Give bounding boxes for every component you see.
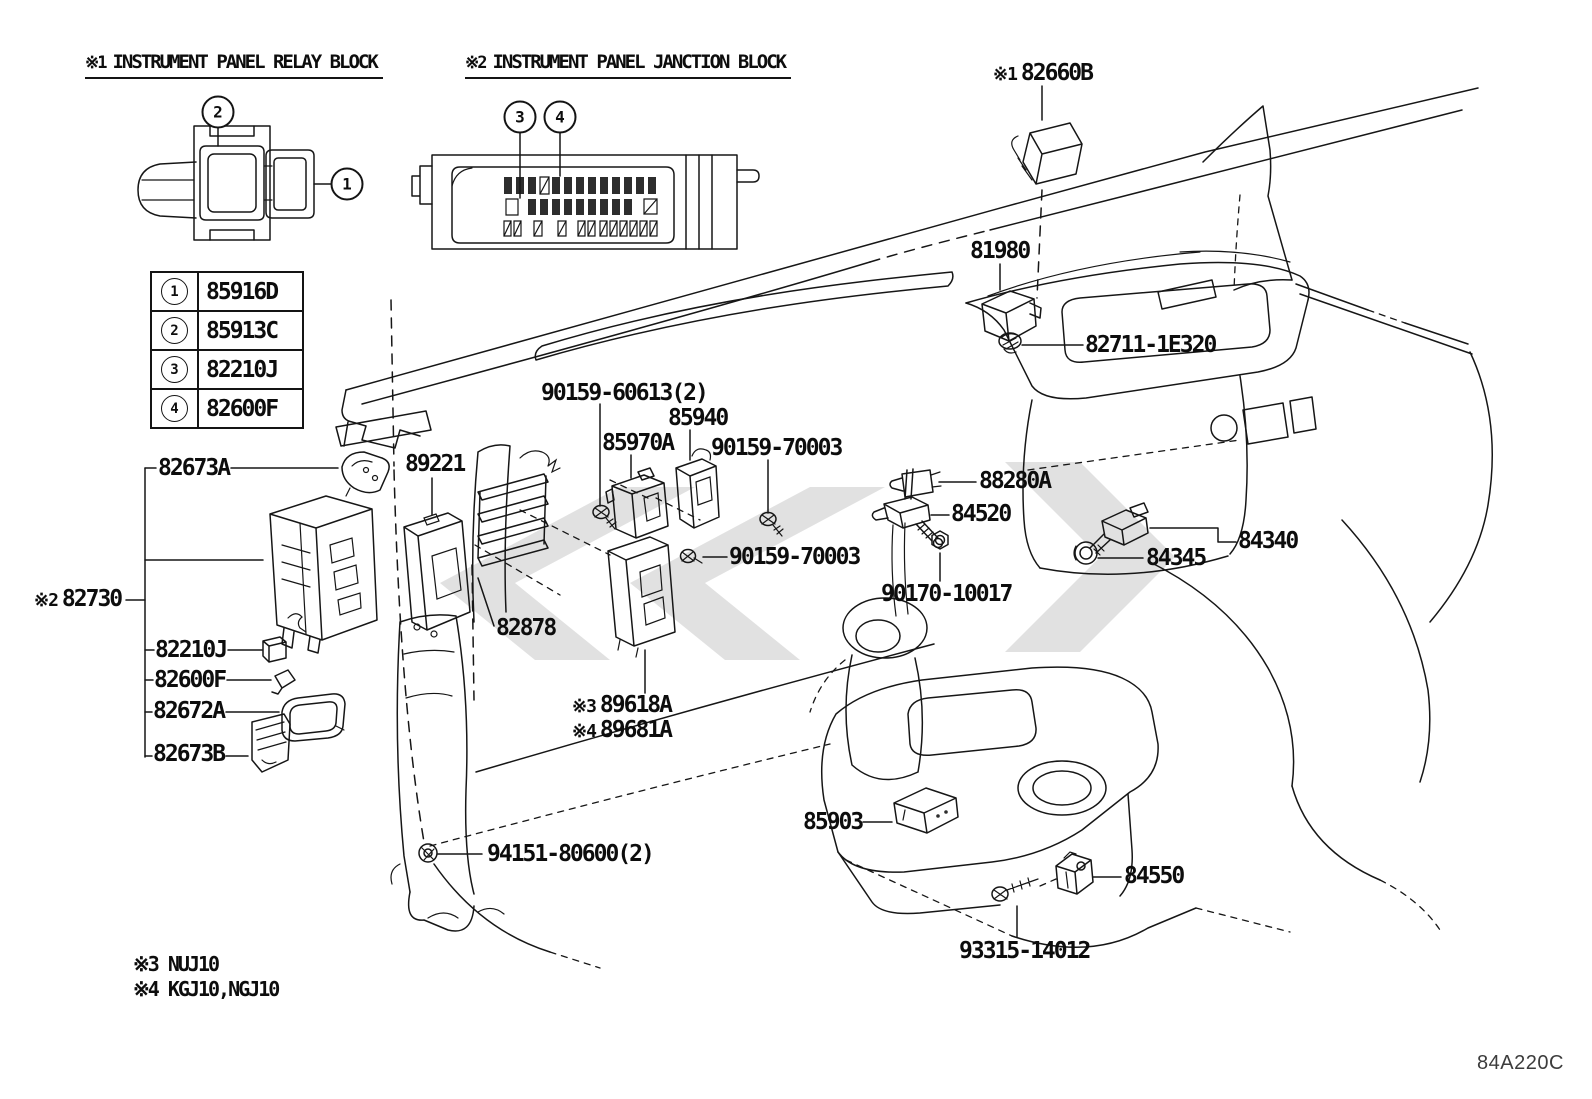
part-label-88280A: 88280A bbox=[979, 470, 1050, 493]
part-number-text: 93315-14012 bbox=[959, 938, 1089, 964]
legend-callout-2: 2 bbox=[161, 317, 188, 344]
part-number-text: 82878 bbox=[496, 615, 555, 641]
legend-callout-4: 4 bbox=[161, 395, 188, 422]
part-label-82672A: 82672A bbox=[153, 700, 224, 723]
legend-part-4: 82600F bbox=[198, 389, 303, 428]
part-number-text: 85903 bbox=[803, 809, 862, 835]
part-label-82660B: ※182660B bbox=[993, 62, 1092, 85]
part-number-text: 84550 bbox=[1124, 863, 1183, 889]
legend-part-1: 85916D bbox=[198, 272, 303, 311]
callout-3: 3 bbox=[504, 101, 537, 134]
part-number-text: 89681A bbox=[600, 717, 671, 743]
part-number-text: 82210J bbox=[155, 637, 226, 663]
part-label-84520: 84520 bbox=[951, 503, 1010, 526]
part-number-text: 90159-70003 bbox=[729, 544, 859, 570]
part-number-text: 82711-1E320 bbox=[1085, 332, 1215, 358]
legend-part-2: 85913C bbox=[198, 311, 303, 350]
part-label-84550: 84550 bbox=[1124, 865, 1183, 888]
part-number-text: 90159-70003 bbox=[711, 435, 841, 461]
part-number-text: 94151-80600(2) bbox=[487, 841, 653, 867]
part-label-82673A: 82673A bbox=[158, 457, 229, 480]
legend-callout-1: 1 bbox=[161, 278, 188, 305]
part-label-85940: 85940 bbox=[668, 407, 727, 430]
part-number-text: 89221 bbox=[405, 451, 464, 477]
part-label-90159-70003: 90159-70003 bbox=[711, 437, 841, 460]
parts-diagram-page: ※1INSTRUMENT PANEL RELAY BLOCK ※2INSTRUM… bbox=[0, 0, 1592, 1099]
part-label-90159-70003: 90159-70003 bbox=[729, 546, 859, 569]
part-label-90159-60613(2): 90159-60613(2) bbox=[541, 382, 707, 405]
part-number-text: 81980 bbox=[970, 238, 1029, 264]
part-label-82730: ※282730 bbox=[34, 588, 121, 611]
part-number-text: 84520 bbox=[951, 501, 1010, 527]
part-label-90170-10017: 90170-10017 bbox=[881, 583, 1011, 606]
part-label-82878: 82878 bbox=[496, 617, 555, 640]
part-number-text: 82673A bbox=[158, 455, 229, 481]
legend-part-3: 82210J bbox=[198, 350, 303, 389]
part-number-text: 90170-10017 bbox=[881, 581, 1011, 607]
ref-mark: ※4 bbox=[572, 721, 596, 742]
callout-2: 2 bbox=[202, 96, 235, 129]
part-number-text: 85940 bbox=[668, 405, 727, 431]
ref-mark: ※3 bbox=[572, 696, 596, 717]
footnote-2: ※4 KGJ10,NGJ10 bbox=[133, 979, 278, 999]
part-label-84340: 84340 bbox=[1238, 530, 1297, 553]
diagram-code: 84A220C bbox=[1477, 1053, 1564, 1073]
labels-layer: ※182660B8198082711-1E32090159-60613(2)85… bbox=[0, 0, 1592, 1099]
legend-table: 1 85916D 2 85913C 3 82210J 4 82600F bbox=[150, 271, 304, 429]
table-row: 3 82210J bbox=[151, 350, 303, 389]
part-number-text: 89618A bbox=[600, 692, 671, 718]
part-label-82600F: 82600F bbox=[154, 669, 225, 692]
part-number-text: 85970A bbox=[602, 430, 673, 456]
part-label-82210J: 82210J bbox=[155, 639, 226, 662]
part-number-text: 90159-60613(2) bbox=[541, 380, 707, 406]
part-label-85903: 85903 bbox=[803, 811, 862, 834]
part-label-85970A: 85970A bbox=[602, 432, 673, 455]
part-label-93315-14012: 93315-14012 bbox=[959, 940, 1089, 963]
part-number-text: 84345 bbox=[1146, 545, 1205, 571]
part-label-89681A: ※489681A bbox=[572, 719, 671, 742]
part-number-text: 82660B bbox=[1021, 60, 1092, 86]
part-number-text: 82600F bbox=[154, 667, 225, 693]
part-number-text: 84340 bbox=[1238, 528, 1297, 554]
part-label-89618A: ※389618A bbox=[572, 694, 671, 717]
table-row: 1 85916D bbox=[151, 272, 303, 311]
part-label-82673B: 82673B bbox=[153, 743, 224, 766]
ref-mark: ※2 bbox=[34, 590, 58, 611]
callout-4: 4 bbox=[544, 101, 577, 134]
part-label-82711-1E320: 82711-1E320 bbox=[1085, 334, 1215, 357]
part-number-text: 82672A bbox=[153, 698, 224, 724]
part-label-94151-80600(2): 94151-80600(2) bbox=[487, 843, 653, 866]
part-number-text: 88280A bbox=[979, 468, 1050, 494]
legend-callout-3: 3 bbox=[161, 356, 188, 383]
ref-mark: ※1 bbox=[993, 64, 1017, 85]
part-label-84345: 84345 bbox=[1146, 547, 1205, 570]
part-label-89221: 89221 bbox=[405, 453, 464, 476]
table-row: 2 85913C bbox=[151, 311, 303, 350]
part-number-text: 82673B bbox=[153, 741, 224, 767]
callout-1: 1 bbox=[331, 168, 364, 201]
footnote-1: ※3 NUJ10 bbox=[133, 954, 218, 974]
part-label-81980: 81980 bbox=[970, 240, 1029, 263]
table-row: 4 82600F bbox=[151, 389, 303, 428]
part-number-text: 82730 bbox=[62, 586, 121, 612]
